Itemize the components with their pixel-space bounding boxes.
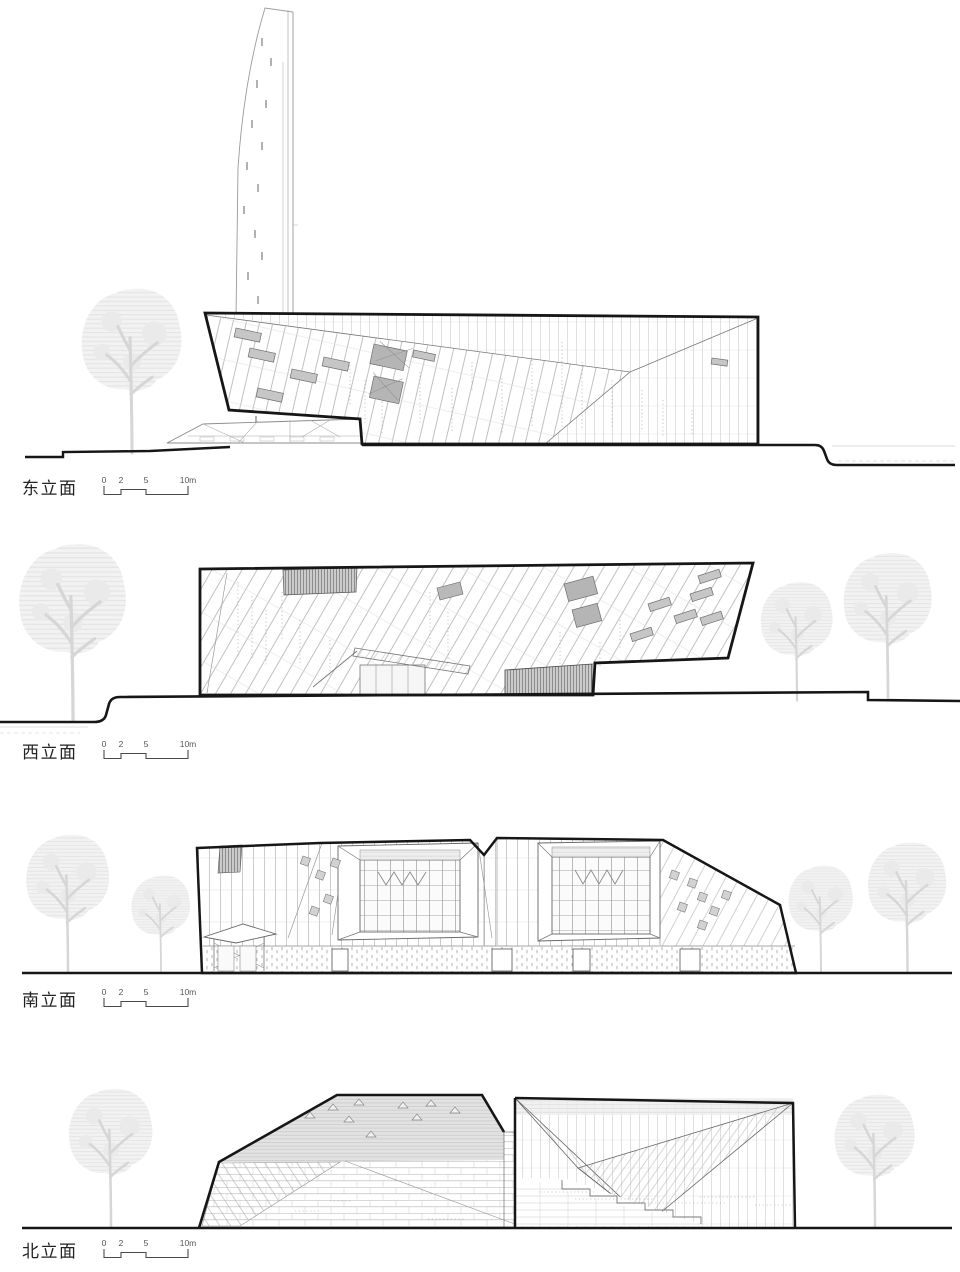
scale-bar: 0 2 5 10m: [100, 1236, 210, 1262]
scale-tick-label: 10m: [180, 739, 197, 749]
louver-strip-top: [283, 567, 357, 595]
scale-bar-shape: [104, 750, 188, 759]
facade-texture-panels: [200, 563, 753, 695]
recess-left: [338, 843, 478, 940]
scale-tick-label: 5: [144, 475, 149, 485]
scale-bar: 0 2 5 10m: [100, 985, 210, 1011]
drawing-west-elevation: [0, 520, 960, 820]
elevation-label-north: 北立面: [22, 1243, 78, 1260]
scale-bar-shape: [104, 998, 188, 1007]
building-south: [197, 838, 796, 973]
elevation-label-text: 东立面: [22, 479, 78, 498]
ground-line: [0, 692, 960, 733]
scale-tick-label: 0: [102, 987, 107, 997]
recess-right: [538, 841, 660, 941]
scale-tick-label: 5: [144, 1238, 149, 1248]
elevation-label-text: 西立面: [22, 743, 78, 762]
scale-tick-label: 0: [102, 739, 107, 749]
scale-bar-shape: [104, 486, 188, 495]
scale-tick-label: 2: [119, 475, 124, 485]
elevation-label-text: 南立面: [22, 991, 78, 1010]
building-west: [200, 563, 753, 695]
scale-tick-label: 2: [119, 987, 124, 997]
scale-tick-label: 0: [102, 475, 107, 485]
building-north-gap: [504, 1132, 515, 1228]
ground-line: [25, 445, 955, 465]
elevation-label-west: 西立面: [22, 744, 78, 761]
base-band: [203, 946, 795, 973]
scale-tick-label: 2: [119, 1238, 124, 1248]
elevation-label-south: 南立面: [22, 992, 78, 1009]
scale-tick-label: 5: [144, 987, 149, 997]
building-north-right-mass: [515, 1098, 795, 1228]
elevation-label-east: 东立面: [22, 480, 78, 497]
elevation-label-text: 北立面: [22, 1242, 78, 1261]
scale-tick-label: 10m: [180, 1238, 197, 1248]
scale-tick-label: 10m: [180, 475, 197, 485]
scale-bar: 0 2 5 10m: [100, 473, 210, 499]
scale-tick-label: 5: [144, 739, 149, 749]
building-north-left-mass: [199, 1095, 520, 1228]
scale-tick-label: 10m: [180, 987, 197, 997]
scale-bar: 0 2 5 10m: [100, 737, 210, 763]
drawing-east-elevation: [0, 0, 960, 530]
annex-entry: [167, 419, 362, 443]
scale-tick-label: 0: [102, 1238, 107, 1248]
scale-tick-label: 2: [119, 739, 124, 749]
tree-silhouette: [82, 289, 182, 453]
louver-strip-top-left: [218, 845, 242, 873]
scale-bar-shape: [104, 1249, 188, 1258]
elevation-sheet: 东立面 0 2 5 10m 西立面 0 2 5 10m 南立面 0 2 5 10…: [0, 0, 960, 1272]
